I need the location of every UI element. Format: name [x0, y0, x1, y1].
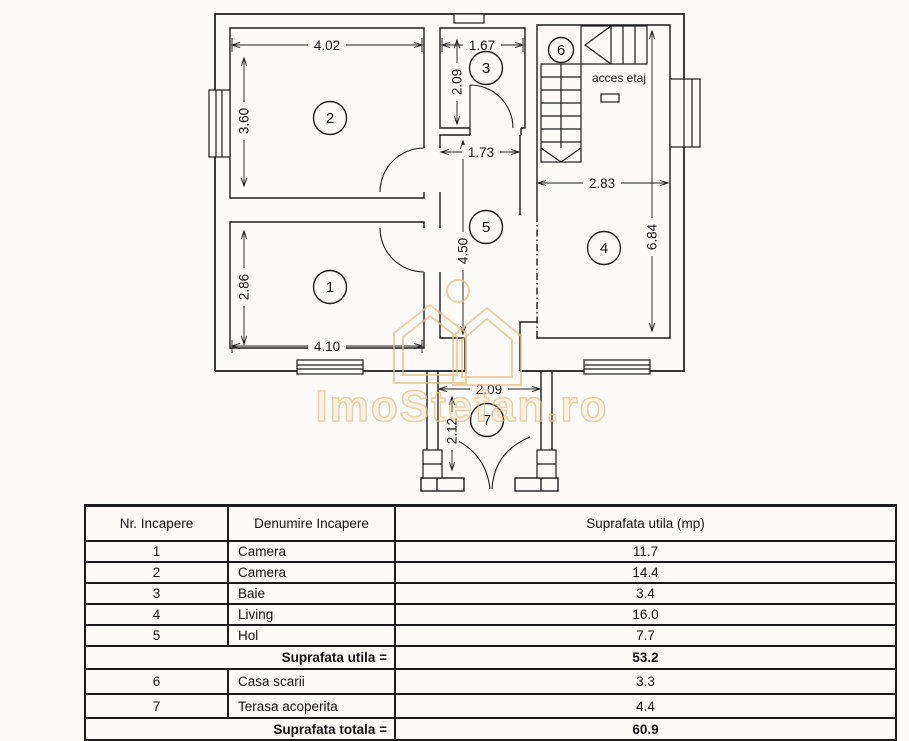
cell-name: Camera [228, 562, 395, 583]
cell-nr: 2 [85, 562, 228, 583]
room-number-2: 2 [326, 110, 334, 127]
cell-name: Terasa acoperita [228, 694, 395, 718]
total-value: 60.9 [395, 718, 896, 740]
dim-room1-height: 2.86 [237, 274, 252, 300]
cell-name: Baie [228, 583, 395, 604]
cell-name: Hol [228, 625, 395, 646]
dim-room4-height: 6.84 [645, 223, 660, 250]
cell-nr: 4 [85, 604, 228, 625]
cell-name: Camera [228, 541, 395, 562]
cell-area: 16.0 [395, 604, 896, 625]
column-header-area: Suprafata utila (mp) [395, 506, 896, 542]
column-header-name: Denumire Incapere [228, 506, 395, 542]
table-row-3: 3 Baie 3.4 [85, 583, 896, 604]
table-row-2: 2 Camera 14.4 [85, 562, 896, 583]
cell-area: 3.3 [395, 669, 896, 694]
dim-room1-width: 4.10 [314, 339, 340, 354]
table-row-6: 6 Casa scarii 3.3 [85, 669, 896, 694]
subtotal-row: Suprafata utila = 53.2 [85, 646, 896, 669]
floor-plan: 4.02 1.67 3.60 2.09 1.73 4.50 2.83 6.84 … [0, 0, 909, 500]
access-etaj-label: acces etaj [592, 71, 646, 85]
cell-nr: 1 [85, 541, 228, 562]
cell-nr: 5 [85, 625, 228, 646]
cell-nr: 7 [85, 694, 228, 718]
room-number-3: 3 [482, 60, 490, 77]
area-table: Nr. Incapere Denumire Incapere Suprafata… [84, 504, 897, 741]
chimney [454, 14, 484, 23]
room-number-5: 5 [482, 219, 490, 236]
room-number-1: 1 [326, 279, 334, 296]
table-row-5: 5 Hol 7.7 [85, 625, 896, 646]
subtotal-value: 53.2 [395, 646, 896, 669]
room-number-4: 4 [600, 240, 608, 257]
cell-name: Living [228, 604, 395, 625]
dim-room3-height: 2.09 [450, 69, 465, 95]
window-right [670, 79, 700, 147]
cell-area: 4.4 [395, 694, 896, 718]
dim-room2-height: 3.60 [237, 108, 252, 134]
total-row: Suprafata totala = 60.9 [85, 718, 896, 740]
room-number-6: 6 [557, 42, 565, 59]
dim-room4-width: 2.83 [589, 176, 615, 191]
table-row-7: 7 Terasa acoperita 4.4 [85, 694, 896, 718]
cell-area: 3.4 [395, 583, 896, 604]
cell-area: 7.7 [395, 625, 896, 646]
dim-hall-width: 1.73 [468, 145, 494, 160]
window-bottom-room4 [584, 360, 650, 374]
subtotal-label: Suprafata utila = [85, 646, 395, 669]
cell-nr: 6 [85, 669, 228, 694]
table-row-1: 1 Camera 11.7 [85, 541, 896, 562]
cell-area: 11.7 [395, 541, 896, 562]
dim-room2-width: 4.02 [314, 38, 340, 53]
dim-room3-width: 1.67 [469, 38, 495, 53]
cell-name: Casa scarii [228, 669, 395, 694]
window-bottom-room1 [297, 360, 363, 374]
watermark-text: ImoStefan.ro [316, 382, 609, 431]
column-header-nr: Nr. Incapere [85, 506, 228, 542]
cell-nr: 3 [85, 583, 228, 604]
table-header-row: Nr. Incapere Denumire Incapere Suprafata… [85, 506, 896, 542]
table-row-4: 4 Living 16.0 [85, 604, 896, 625]
dim-hall-height: 4.50 [456, 238, 471, 264]
window-left [209, 90, 230, 157]
total-label: Suprafata totala = [85, 718, 395, 740]
cell-area: 14.4 [395, 562, 896, 583]
